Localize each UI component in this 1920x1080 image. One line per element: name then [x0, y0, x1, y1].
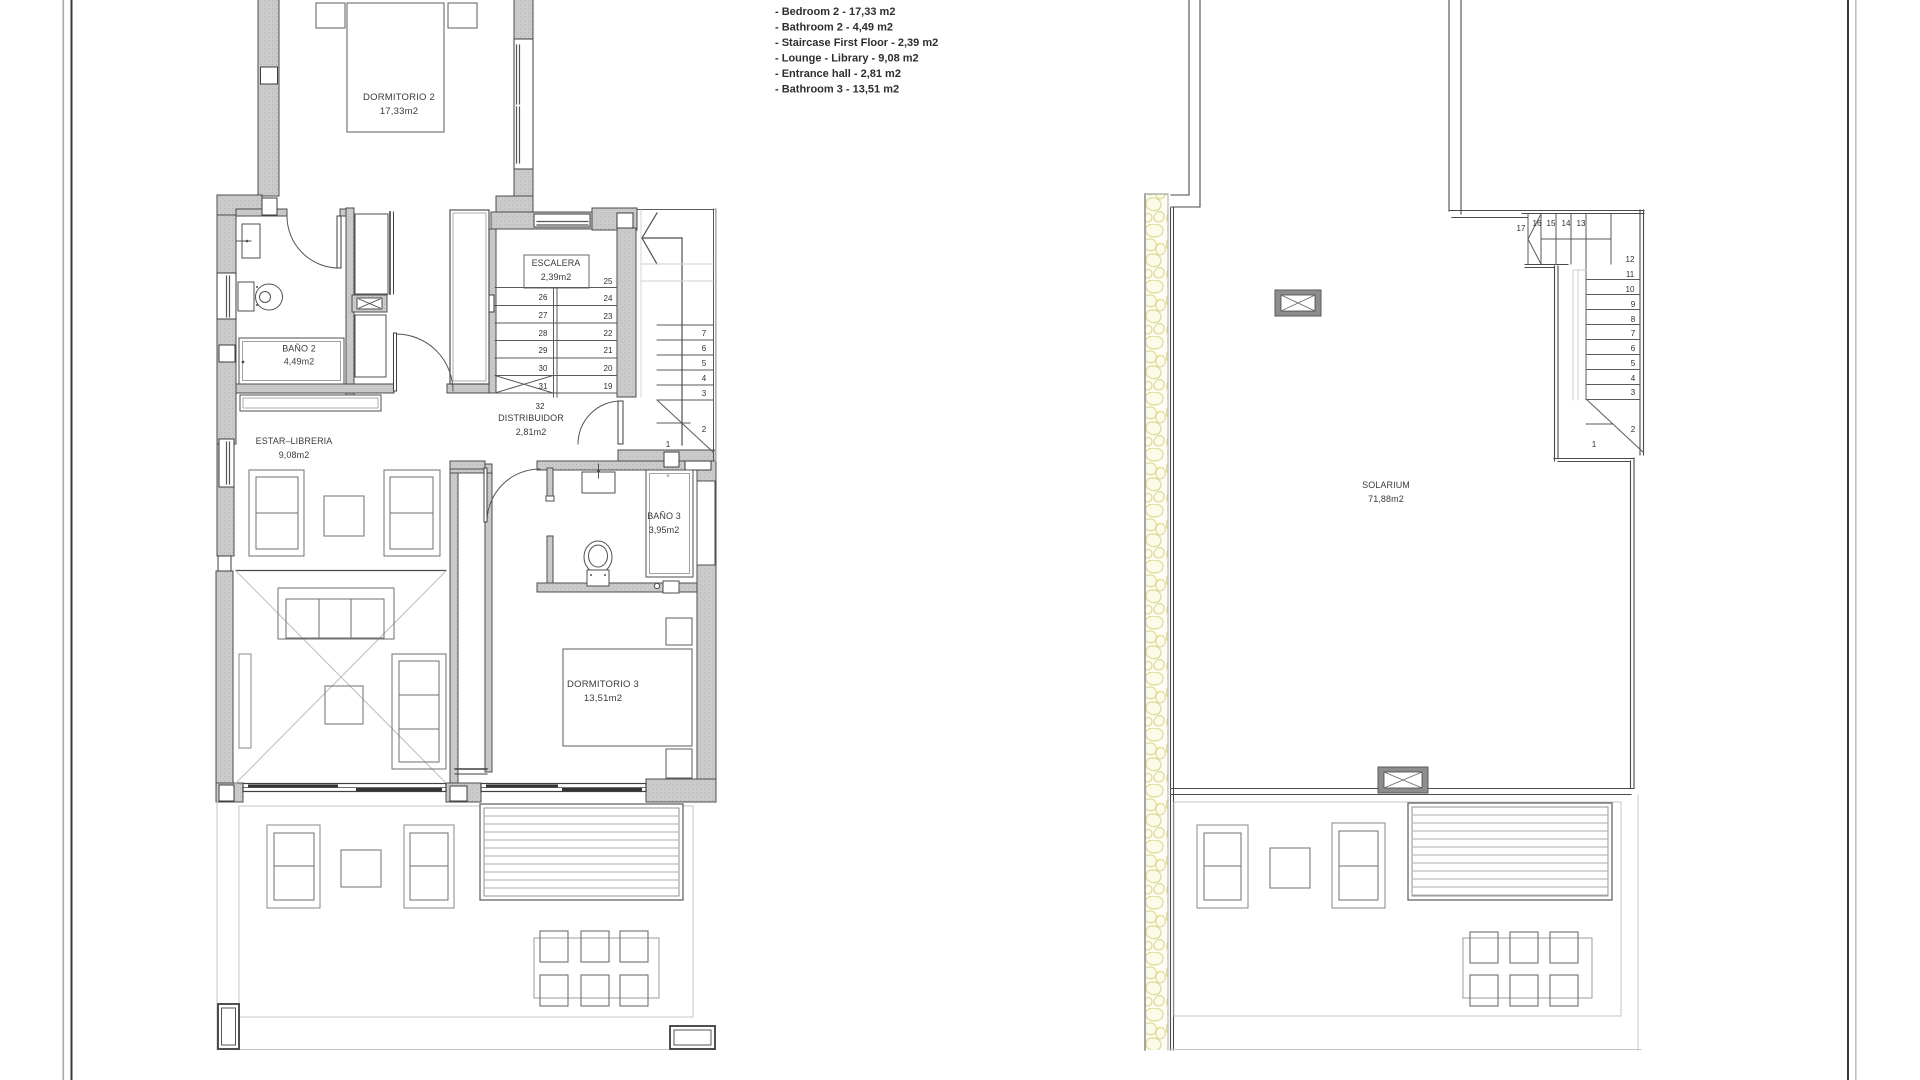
svg-text:12: 12 — [1626, 255, 1635, 264]
svg-text:13: 13 — [1577, 219, 1586, 228]
svg-text:16: 16 — [1533, 219, 1542, 228]
svg-text:DORMITORIO 2: DORMITORIO 2 — [363, 92, 435, 103]
svg-text:BAÑO 3: BAÑO 3 — [647, 511, 681, 521]
svg-text:32: 32 — [536, 402, 545, 411]
svg-text:17: 17 — [1517, 224, 1526, 233]
svg-text:- Entrance hall - 2,81 m2: - Entrance hall - 2,81 m2 — [775, 68, 901, 80]
svg-text:3,95m2: 3,95m2 — [649, 525, 680, 535]
svg-text:2: 2 — [702, 425, 707, 434]
svg-text:7: 7 — [1631, 329, 1636, 338]
svg-text:22: 22 — [604, 329, 613, 338]
svg-text:5: 5 — [1631, 359, 1636, 368]
svg-text:15: 15 — [1547, 219, 1556, 228]
svg-text:2,39m2: 2,39m2 — [541, 272, 572, 282]
svg-text:- Lounge - Library - 9,08 m2: - Lounge - Library - 9,08 m2 — [775, 53, 919, 65]
svg-text:BAÑO 2: BAÑO 2 — [282, 344, 316, 354]
svg-text:13,51m2: 13,51m2 — [584, 693, 622, 704]
svg-text:28: 28 — [539, 329, 548, 338]
svg-text:DISTRIBUIDOR: DISTRIBUIDOR — [498, 413, 564, 423]
svg-text:ESCALERA: ESCALERA — [532, 258, 581, 268]
svg-text:5: 5 — [702, 359, 707, 368]
svg-text:71,88m2: 71,88m2 — [1368, 494, 1404, 504]
svg-text:1: 1 — [666, 440, 671, 449]
svg-text:31: 31 — [539, 382, 548, 391]
svg-text:4: 4 — [702, 374, 707, 383]
svg-text:30: 30 — [539, 364, 548, 373]
svg-text:*: * — [666, 473, 669, 482]
svg-text:29: 29 — [539, 346, 548, 355]
svg-text:8: 8 — [1631, 315, 1636, 324]
svg-text:7: 7 — [702, 329, 707, 338]
svg-text:27: 27 — [539, 311, 548, 320]
svg-text:10: 10 — [1626, 285, 1635, 294]
svg-text:21: 21 — [604, 346, 613, 355]
svg-text:24: 24 — [604, 294, 613, 303]
svg-text:- Bedroom 2 - 17,33 m2: - Bedroom 2 - 17,33 m2 — [775, 6, 895, 18]
svg-text:26: 26 — [539, 293, 548, 302]
svg-text:3: 3 — [702, 389, 707, 398]
svg-text:14: 14 — [1562, 219, 1571, 228]
svg-text:4: 4 — [1631, 374, 1636, 383]
svg-text:3: 3 — [1631, 388, 1636, 397]
svg-text:- Bathroom 2 - 4,49 m2: - Bathroom 2 - 4,49 m2 — [775, 22, 893, 34]
svg-text:DORMITORIO 3: DORMITORIO 3 — [567, 679, 639, 690]
svg-text:6: 6 — [1631, 344, 1636, 353]
svg-text:19: 19 — [604, 382, 613, 391]
svg-text:SOLARIUM: SOLARIUM — [1362, 480, 1410, 490]
svg-text:4,49m2: 4,49m2 — [284, 357, 315, 367]
svg-text:2: 2 — [1631, 425, 1636, 434]
svg-text:9: 9 — [1631, 300, 1636, 309]
svg-text:9,08m2: 9,08m2 — [279, 450, 310, 460]
svg-text:- Staircase First Floor - 2,39: - Staircase First Floor - 2,39 m2 — [775, 37, 938, 49]
svg-text:6: 6 — [702, 344, 707, 353]
svg-text:2,81m2: 2,81m2 — [516, 427, 547, 437]
svg-text:11: 11 — [1626, 270, 1635, 279]
svg-text:17,33m2: 17,33m2 — [380, 106, 418, 117]
svg-text:1: 1 — [1592, 440, 1597, 449]
svg-text:23: 23 — [604, 312, 613, 321]
svg-text:ESTAR–LIBRERIA: ESTAR–LIBRERIA — [256, 436, 333, 446]
svg-text:25: 25 — [604, 277, 613, 286]
svg-text:20: 20 — [604, 364, 613, 373]
svg-text:- Bathroom 3 - 13,51 m2: - Bathroom 3 - 13,51 m2 — [775, 84, 899, 96]
